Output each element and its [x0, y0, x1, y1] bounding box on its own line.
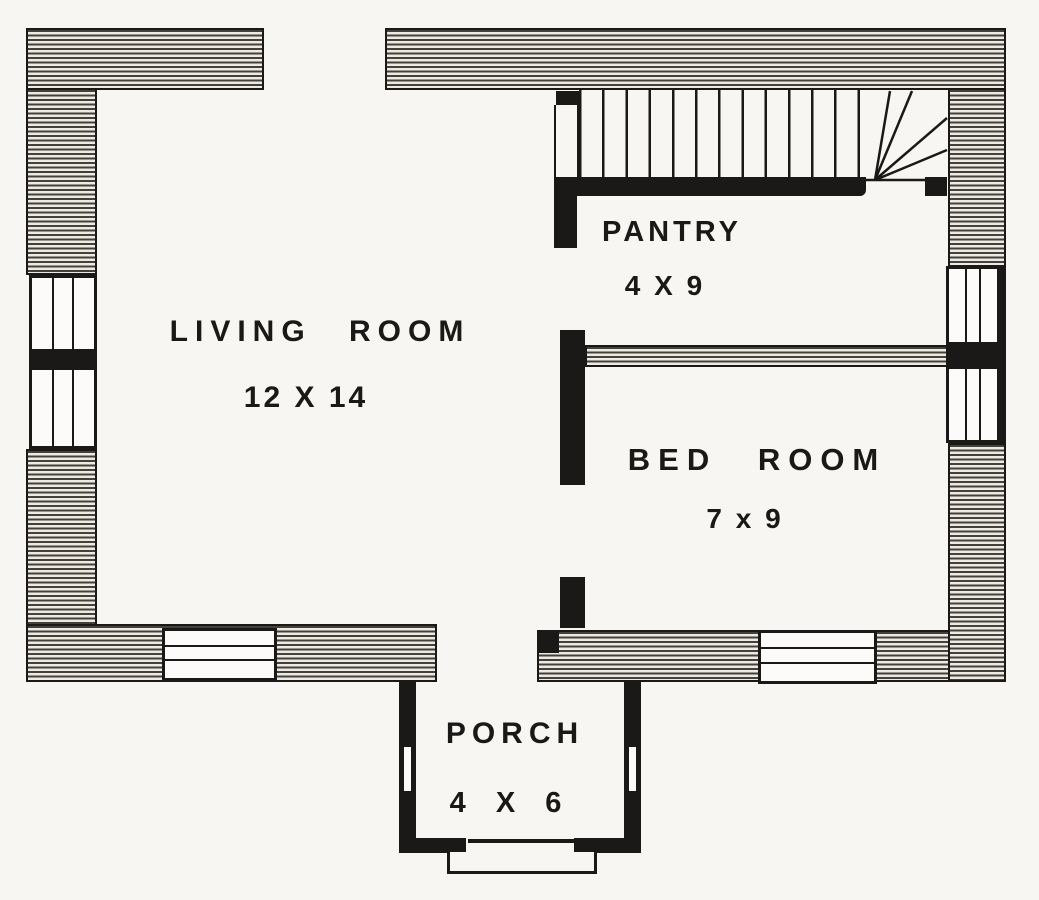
wall-top-right [385, 28, 1006, 90]
wall-partition-pantry-bedroom [585, 345, 948, 367]
stair-wall-end [925, 177, 947, 196]
stair-wall [554, 177, 866, 196]
label-bed-room-dims: 7 x 9 [665, 504, 825, 535]
porch-door-jamb [537, 630, 559, 653]
label-porch: PORCH [415, 717, 615, 750]
window-right-upper [946, 266, 1000, 345]
stairs-newel [556, 91, 580, 105]
porch-window-right [629, 747, 636, 791]
label-bed-room: BED ROOM [607, 443, 907, 477]
label-pantry: PANTRY [572, 217, 772, 249]
porch-window-left [404, 747, 411, 791]
window-right-lower [946, 366, 1000, 443]
wall-right-lower [948, 443, 1006, 682]
label-living-room-dims: 12 X 14 [186, 381, 426, 414]
porch-opening-line [468, 839, 577, 843]
label-pantry-dims: 4 X 9 [585, 271, 745, 302]
bedroom-door-jamb-upper [560, 330, 585, 485]
stairs-treads [579, 90, 860, 178]
right-wall-outer-strip [998, 266, 1006, 445]
window-mullion-left [29, 352, 97, 367]
label-porch-dims: 4 X 6 [409, 788, 609, 820]
bedroom-door-jamb-lower [560, 577, 585, 628]
porch-step [447, 852, 597, 874]
porch-corner-right [574, 838, 641, 853]
wall-left-upper [26, 88, 97, 275]
window-left-lower [29, 367, 97, 449]
label-living-room: LIVING ROOM [140, 315, 500, 348]
wall-top-left [26, 28, 264, 90]
stairs-stringer [554, 105, 580, 177]
window-bottom-bed-room [758, 630, 877, 684]
wall-right-upper [948, 88, 1006, 267]
floor-plan: LIVING ROOM 12 X 14 PANTRY 4 X 9 BED ROO… [0, 0, 1039, 900]
window-bottom-living-room [162, 628, 277, 681]
stairs-winders-icon [850, 85, 950, 185]
wall-left-lower [26, 449, 97, 626]
porch-corner-left [399, 838, 466, 853]
window-left-upper [29, 275, 97, 352]
